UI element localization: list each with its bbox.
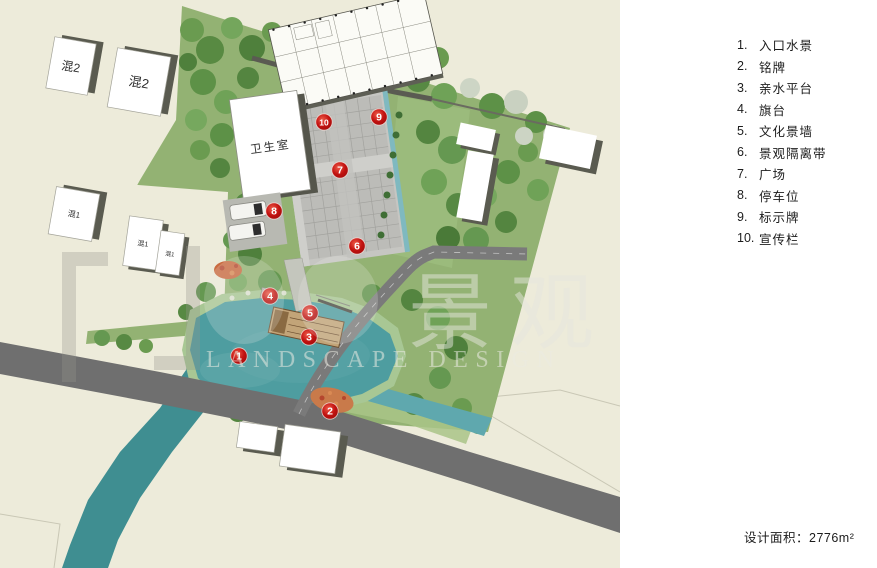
legend-item-number: 7. [737, 167, 759, 181]
legend-item-label: 广场 [759, 164, 786, 183]
legend-item-label: 文化景墙 [759, 121, 813, 140]
legend-item-number: 1. [737, 38, 759, 52]
screenshot-canvas: 卫生室 混2 [0, 0, 877, 568]
legend-list: 1.入口水景2.铭牌3.亲水平台4.旗台5.文化景墙6.景观隔离带7.广场8.停… [737, 34, 872, 249]
legend-item: 9.标示牌 [737, 206, 872, 228]
parking-area [223, 192, 288, 252]
design-area-note: 设计面积：2776m² [744, 527, 854, 546]
building-south-small [236, 421, 285, 456]
legend-item: 7.广场 [737, 163, 872, 185]
building-hun1-a: 混1 [48, 184, 107, 243]
legend-item-label: 旗台 [759, 100, 786, 119]
legend-item-label: 停车位 [759, 186, 800, 205]
marker-number-6: 6 [354, 241, 360, 253]
clinic-building: 卫生室 [229, 90, 318, 203]
building-hun2-a: 混2 [46, 34, 104, 97]
legend-item-number: 6. [737, 145, 759, 159]
legend-item-label: 亲水平台 [759, 78, 813, 97]
building-south-big [279, 424, 349, 477]
legend-item-label: 标示牌 [759, 207, 800, 226]
legend-item-number: 2. [737, 59, 759, 73]
marker-number-3: 3 [306, 332, 312, 344]
legend-item-number: 8. [737, 188, 759, 202]
legend-item: 4.旗台 [737, 99, 872, 121]
marker-number-2: 2 [327, 406, 333, 418]
marker-number-4: 4 [267, 291, 273, 303]
site-plan-map: 卫生室 混2 [0, 0, 620, 568]
marker-number-1: 1 [236, 351, 242, 363]
legend-item-number: 3. [737, 81, 759, 95]
flower-bed-west [214, 261, 242, 279]
building-hun2-b: 混2 [107, 45, 178, 118]
legend-item-number: 10. [737, 231, 759, 245]
legend-item: 5.文化景墙 [737, 120, 872, 142]
legend-item-number: 5. [737, 124, 759, 138]
legend-item-label: 铭牌 [759, 57, 786, 76]
legend-item-number: 4. [737, 102, 759, 116]
legend-item-label: 入口水景 [759, 35, 813, 54]
legend-item: 6.景观隔离带 [737, 142, 872, 164]
marker-number-9: 9 [376, 112, 382, 124]
legend-item: 8.停车位 [737, 185, 872, 207]
legend-item: 2.铭牌 [737, 56, 872, 78]
marker-number-7: 7 [337, 165, 343, 177]
marker-number-10: 10 [319, 118, 329, 128]
legend-item: 10.宣传栏 [737, 228, 872, 250]
marker-number-8: 8 [271, 206, 277, 218]
building-hun1-c: 混1 [155, 231, 190, 280]
legend-item-label: 景观隔离带 [759, 143, 827, 162]
legend-panel: 1.入口水景2.铭牌3.亲水平台4.旗台5.文化景墙6.景观隔离带7.广场8.停… [737, 34, 872, 249]
legend-item: 1.入口水景 [737, 34, 872, 56]
legend-item-label: 宣传栏 [759, 229, 800, 248]
legend-item: 3.亲水平台 [737, 77, 872, 99]
marker-number-5: 5 [307, 308, 313, 320]
legend-item-number: 9. [737, 210, 759, 224]
